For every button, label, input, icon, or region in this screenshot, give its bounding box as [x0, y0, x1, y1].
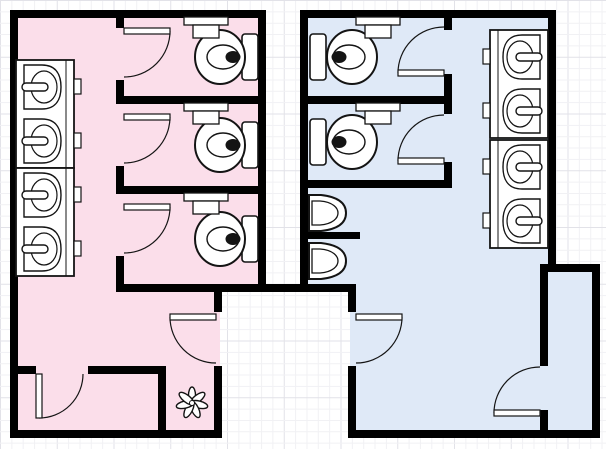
wall[interactable] — [308, 180, 452, 188]
toilet-tank — [310, 119, 326, 165]
soap-dispenser — [74, 187, 81, 202]
floor-plan — [0, 0, 606, 449]
soap-dispenser — [74, 133, 81, 148]
door-leaf[interactable] — [170, 314, 216, 320]
urinal-icon[interactable] — [309, 243, 346, 279]
wall[interactable] — [300, 10, 308, 292]
wall[interactable] — [18, 366, 36, 374]
dispenser-bar — [184, 193, 228, 201]
sink-faucet — [516, 53, 542, 61]
wall[interactable] — [258, 10, 266, 292]
wall[interactable] — [348, 292, 356, 312]
wall[interactable] — [592, 272, 600, 430]
wall[interactable] — [444, 162, 452, 180]
soap-dispenser — [483, 103, 490, 118]
wall[interactable] — [214, 292, 222, 312]
dispenser-box — [365, 111, 391, 124]
wall[interactable] — [158, 374, 166, 430]
wall[interactable] — [308, 232, 360, 239]
sink-faucet — [516, 163, 542, 171]
wall[interactable] — [548, 10, 556, 272]
dispenser-bar — [184, 17, 228, 25]
dispenser-bar — [184, 103, 228, 111]
wall[interactable] — [444, 74, 452, 96]
sink-faucet — [516, 107, 542, 115]
dispenser-bar — [356, 17, 400, 25]
door-leaf[interactable] — [36, 374, 42, 418]
soap-dispenser — [74, 79, 81, 94]
soap-dispenser — [483, 49, 490, 64]
wall[interactable] — [10, 430, 222, 438]
dispenser-box — [365, 25, 391, 38]
door-leaf[interactable] — [124, 204, 170, 210]
wall[interactable] — [540, 264, 600, 272]
room-floor-mens-storage-closet[interactable] — [546, 270, 594, 432]
toilet-drain — [332, 136, 347, 148]
sink-faucet — [22, 137, 48, 145]
floor-plan-canvas — [0, 0, 606, 449]
soap-dispenser — [483, 159, 490, 174]
toilet-icon[interactable] — [195, 212, 258, 266]
urinal-icon[interactable] — [309, 195, 346, 231]
wall[interactable] — [300, 10, 556, 18]
wall[interactable] — [116, 284, 356, 292]
sink-faucet — [516, 217, 542, 225]
wall[interactable] — [348, 366, 356, 430]
sink-faucet — [22, 83, 48, 91]
door-leaf[interactable] — [356, 314, 402, 320]
toilet-drain — [226, 51, 241, 63]
door-leaf[interactable] — [494, 410, 540, 416]
sink-faucet — [22, 191, 48, 199]
wall[interactable] — [88, 366, 166, 374]
wall[interactable] — [540, 272, 548, 366]
dispenser-box — [193, 25, 219, 38]
door-leaf[interactable] — [124, 28, 170, 34]
dispenser-box — [193, 201, 219, 214]
wall[interactable] — [214, 366, 222, 430]
toilet-drain — [226, 139, 241, 151]
door-leaf[interactable] — [398, 158, 444, 164]
soap-dispenser — [483, 213, 490, 228]
toilet-icon[interactable] — [195, 118, 258, 172]
plant-center — [190, 401, 195, 406]
wall[interactable] — [348, 430, 600, 438]
wall[interactable] — [444, 104, 452, 114]
soap-dispenser — [74, 241, 81, 256]
wall[interactable] — [116, 18, 124, 28]
wall[interactable] — [540, 410, 548, 430]
wall[interactable] — [444, 18, 452, 30]
door-leaf[interactable] — [124, 114, 170, 120]
toilet-drain — [226, 233, 241, 245]
dispenser-bar — [356, 103, 400, 111]
toilet-drain — [332, 51, 347, 63]
toilet-tank — [310, 34, 326, 80]
dispenser-box — [193, 111, 219, 124]
sink-faucet — [22, 245, 48, 253]
door-leaf[interactable] — [398, 70, 444, 76]
wall[interactable] — [116, 256, 124, 292]
